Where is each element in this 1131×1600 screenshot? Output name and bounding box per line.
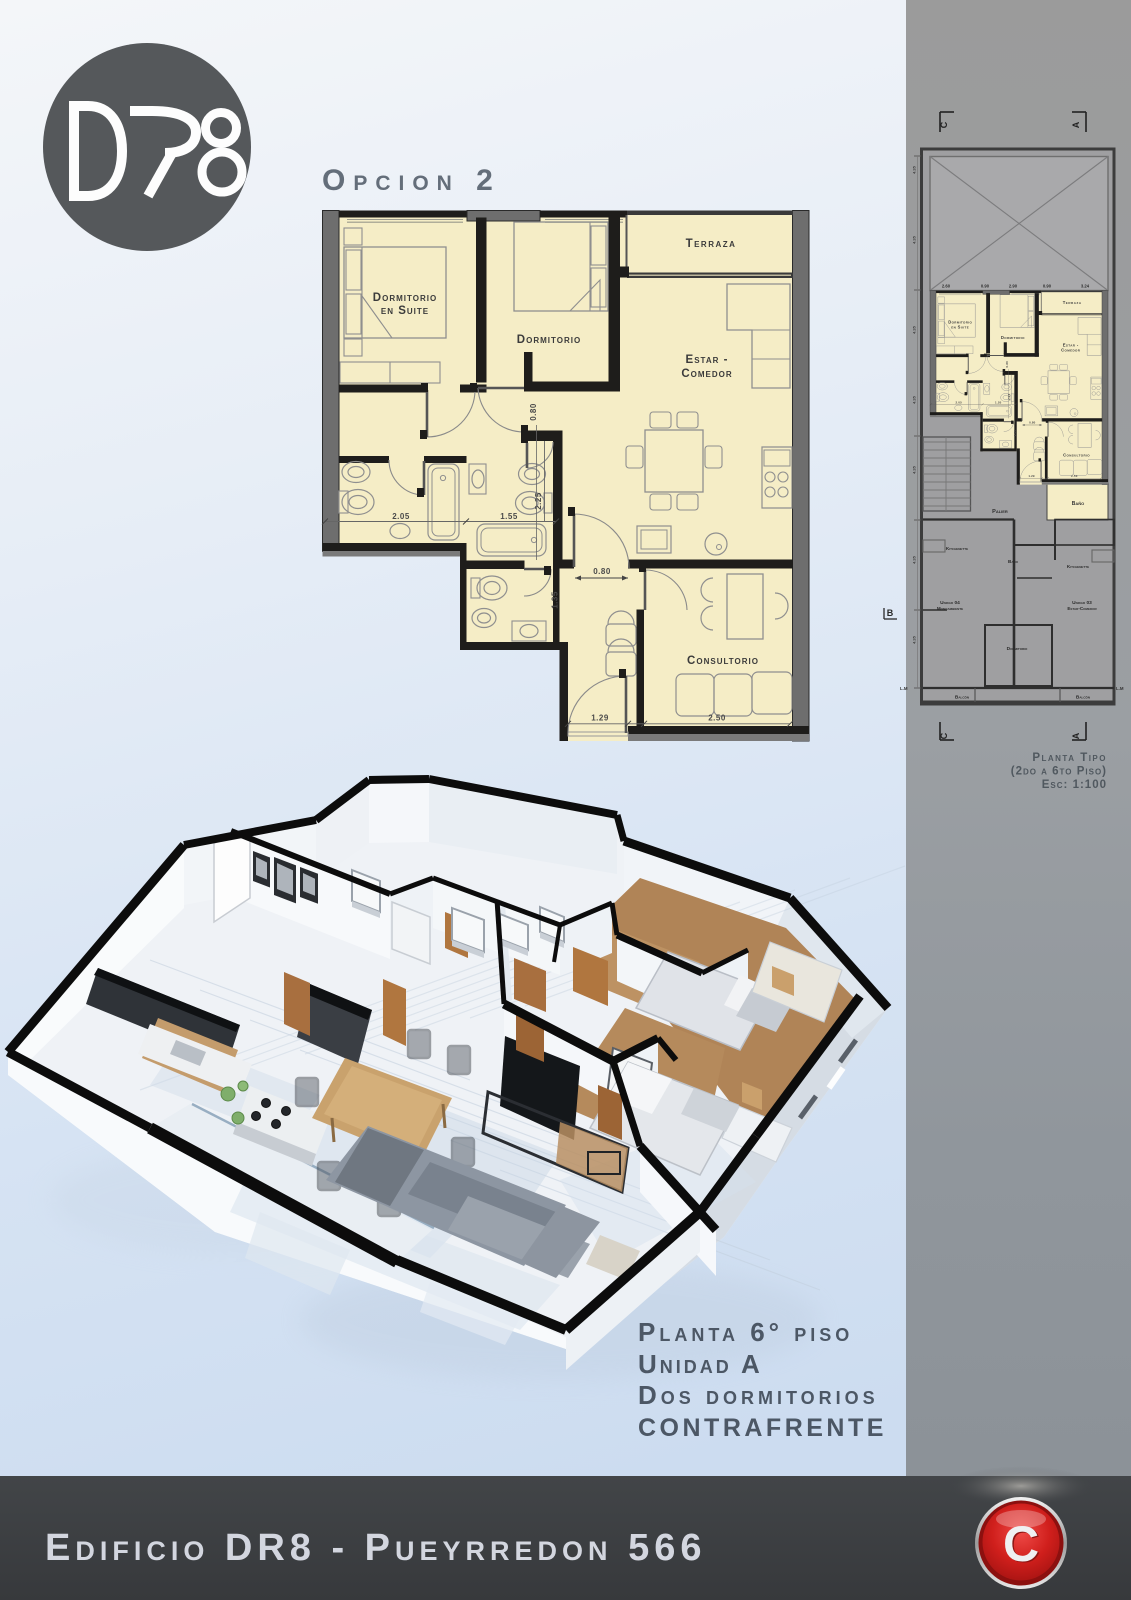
svg-text:4.35: 4.35 <box>912 395 917 404</box>
svg-text:Esc: 1:100: Esc: 1:100 <box>1042 779 1107 791</box>
svg-text:C: C <box>939 121 949 128</box>
svg-text:Palier: Palier <box>992 509 1008 515</box>
svg-text:4.35: 4.35 <box>912 555 917 564</box>
svg-text:A: A <box>1071 121 1081 128</box>
svg-text:2.90: 2.90 <box>1009 284 1018 289</box>
svg-text:Unidad A: Unidad A <box>638 1349 763 1379</box>
svg-text:Dormitorio: Dormitorio <box>1007 646 1028 652</box>
svg-text:4.35: 4.35 <box>912 165 917 174</box>
svg-text:0.90: 0.90 <box>1043 284 1052 289</box>
svg-text:Planta 6° piso: Planta 6° piso <box>638 1317 853 1347</box>
svg-text:C: C <box>939 732 949 739</box>
svg-text:Balcón: Balcón <box>955 695 969 701</box>
svg-text:Dos dormitorios: Dos dormitorios <box>638 1380 879 1410</box>
svg-text:Kitchenette: Kitchenette <box>946 546 968 551</box>
svg-text:L.M: L.M <box>1116 686 1124 691</box>
svg-text:3.24: 3.24 <box>1081 284 1090 289</box>
svg-text:Edificio DR8 - Pueyrredon 566: Edificio DR8 - Pueyrredon 566 <box>45 1527 707 1569</box>
svg-text:C: C <box>1003 1516 1039 1572</box>
svg-text:Kitchenette: Kitchenette <box>1067 564 1089 569</box>
svg-text:Opcion 2: Opcion 2 <box>322 164 501 197</box>
svg-text:2.60: 2.60 <box>942 284 951 289</box>
svg-text:Balcón: Balcón <box>1076 695 1090 701</box>
svg-text:L.M: L.M <box>900 686 908 691</box>
svg-text:A: A <box>1071 732 1081 739</box>
svg-text:Planta Tipo: Planta Tipo <box>1032 752 1107 764</box>
svg-text:Baño: Baño <box>1072 501 1085 507</box>
svg-text:0.90: 0.90 <box>981 284 990 289</box>
svg-text:Baño: Baño <box>1008 559 1019 564</box>
svg-text:4.35: 4.35 <box>912 635 917 644</box>
svg-text:B: B <box>887 608 894 618</box>
svg-text:(2do a 6to Piso): (2do a 6to Piso) <box>1011 766 1107 778</box>
svg-text:4.35: 4.35 <box>912 465 917 474</box>
svg-text:CONTRAFRENTE: CONTRAFRENTE <box>638 1414 887 1442</box>
svg-text:4.35: 4.35 <box>912 325 917 334</box>
svg-text:Estar-Comedor: Estar-Comedor <box>1067 606 1097 611</box>
svg-text:4.35: 4.35 <box>912 235 917 244</box>
svg-text:Monoambiente: Monoambiente <box>937 606 963 611</box>
